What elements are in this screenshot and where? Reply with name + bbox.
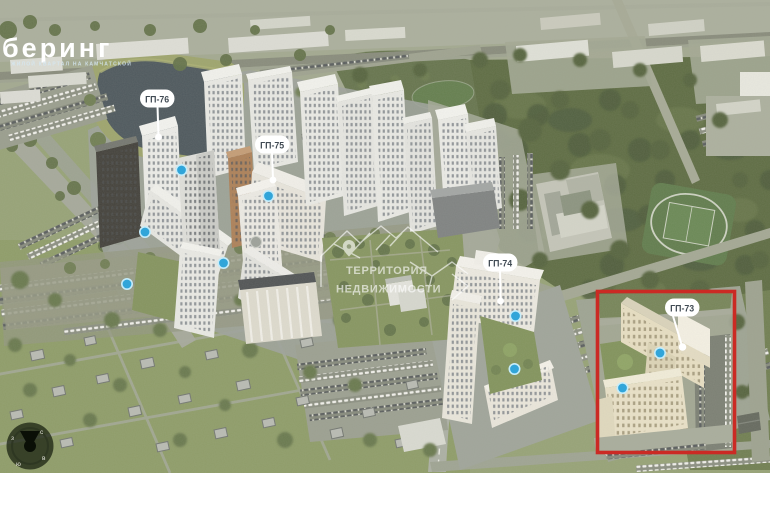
svg-text:з: з <box>11 435 14 442</box>
svg-text:ГП-76: ГП-76 <box>145 95 169 105</box>
svg-text:ГП-75: ГП-75 <box>260 141 284 151</box>
svg-text:ГП-73: ГП-73 <box>670 304 694 314</box>
svg-text:НЕДВИЖИМОСТИ: НЕДВИЖИМОСТИ <box>336 284 441 296</box>
svg-text:ГП-74: ГП-74 <box>488 259 512 269</box>
svg-text:ю: ю <box>16 461 21 468</box>
svg-text:ТЕРРИТОРИЯ: ТЕРРИТОРИЯ <box>346 265 428 277</box>
svg-text:ЖИЛОЙ КВАРТАЛ НА КАМЧАТСКОЙ: ЖИЛОЙ КВАРТАЛ НА КАМЧАТСКОЙ <box>10 60 132 68</box>
svg-text:в: в <box>42 455 46 462</box>
svg-text:беринг: беринг <box>2 33 112 63</box>
